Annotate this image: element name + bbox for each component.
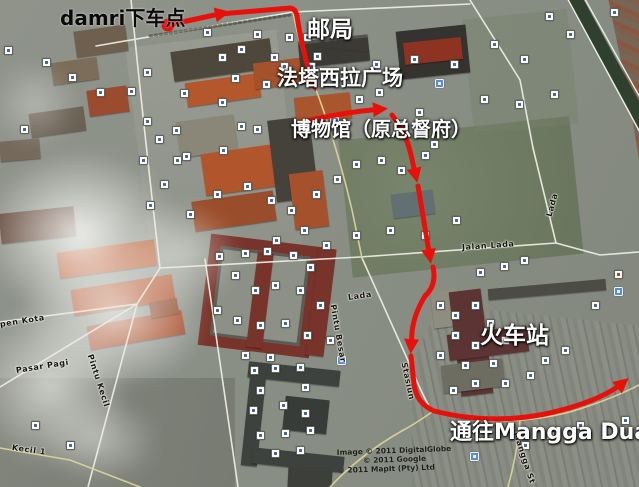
map-canvas[interactable]: Jalan LadaLadaLadaPintu BesarPasar Pagip… xyxy=(0,0,639,487)
map-attribution: Image © 2011 DigitalGlobe © 2011 Google … xyxy=(337,444,452,475)
annotation-museum: 博物馆（原总督府） xyxy=(291,113,471,142)
annotation-fatahillah-square: 法塔西拉广场 xyxy=(277,62,403,92)
annotation-train-station: 火车站 xyxy=(480,316,549,350)
annotation-mangga-dua: 通往Mangga Dua xyxy=(450,414,639,446)
annotation-damri-dropoff: damri下车点 xyxy=(60,2,185,31)
annotation-post-office: 邮局 xyxy=(307,10,353,44)
